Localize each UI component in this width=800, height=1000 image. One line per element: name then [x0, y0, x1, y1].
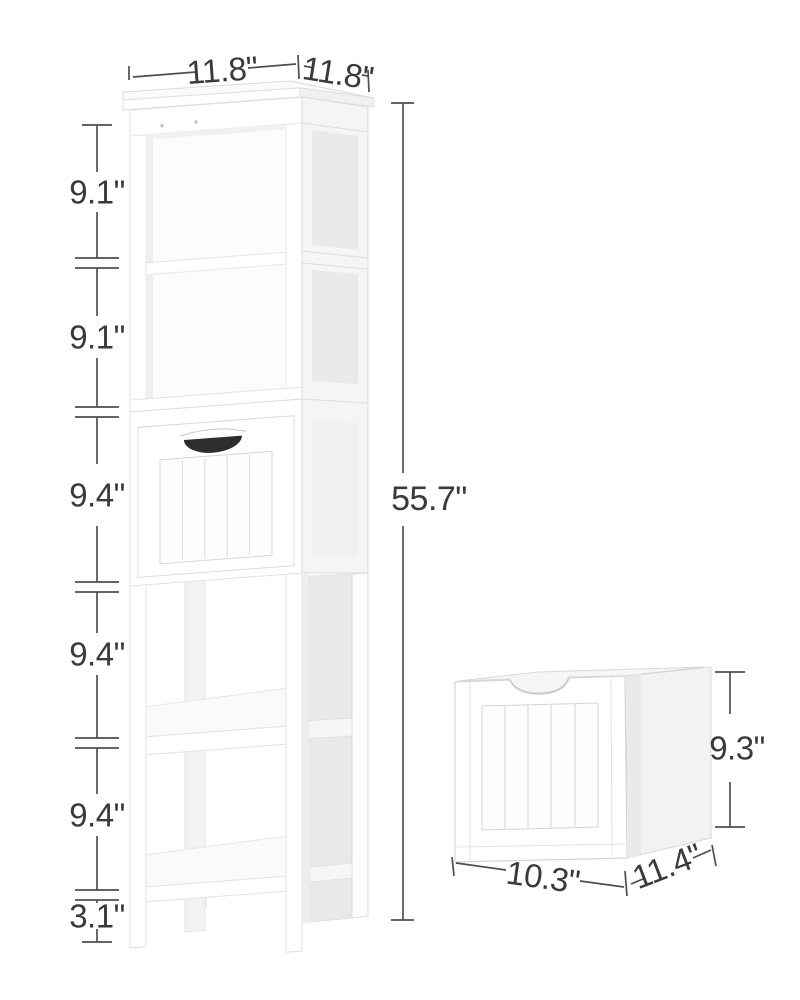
- open-compartment-2: [146, 264, 286, 399]
- tower-front-face: [130, 97, 302, 964]
- dim-tick: [625, 871, 627, 896]
- section-label-1: 9.1": [69, 174, 125, 211]
- section-label-4: 9.4": [69, 636, 125, 673]
- drawer-groove-panel: [160, 451, 272, 563]
- back-left-foot: [185, 897, 205, 932]
- front-left-foot-bottom: [130, 947, 146, 948]
- screw-dot: [194, 120, 198, 124]
- section-label-6: 3.1": [69, 898, 125, 935]
- product-dimension-diagram: 11.8" 11.8" 9.1" 9.1" 9.4": [0, 0, 800, 1000]
- box-width-label: 10.3": [504, 854, 582, 901]
- compartment-1-left-shadow: [146, 134, 153, 263]
- section-label-3: 9.4": [69, 477, 125, 514]
- drawer-box-illustration: [455, 667, 711, 862]
- side-drawer-panel: [312, 421, 358, 557]
- front-right-foot-bottom: [286, 951, 302, 952]
- back-left-leg: [185, 750, 205, 852]
- side-opening-2: [312, 270, 358, 384]
- box-height-label: 9.3": [709, 730, 765, 767]
- open-compartment-1: [146, 124, 286, 263]
- tower-top-width-label: 11.8": [185, 49, 258, 91]
- side-opening-1: [312, 130, 358, 250]
- section-label-2: 9.1": [69, 319, 125, 356]
- tower-height-label: 55.7": [391, 480, 467, 518]
- dim-tick: [712, 845, 716, 866]
- section-label-5: 9.4": [69, 797, 125, 834]
- box-height-dimension: 9.3": [709, 672, 765, 827]
- box-groove-panel: [482, 703, 598, 830]
- dim-tick: [298, 55, 299, 79]
- back-right-leg: [352, 573, 368, 918]
- tower-illustration: [123, 81, 374, 964]
- compartment-2-left-shadow: [146, 274, 153, 399]
- tower-section-dimensions: 9.1" 9.1" 9.4" 9.4" 9.4" 3.1": [69, 125, 125, 942]
- diagram-canvas: 11.8" 11.8" 9.1" 9.1" 9.4": [0, 0, 800, 1000]
- tower-side-face: [302, 97, 368, 924]
- screw-dot: [160, 124, 164, 128]
- box-side-edge-shade: [627, 674, 641, 858]
- dim-line: [580, 881, 624, 887]
- dim-line: [456, 863, 506, 870]
- back-left-leg: [185, 580, 205, 704]
- dim-tick: [452, 857, 454, 876]
